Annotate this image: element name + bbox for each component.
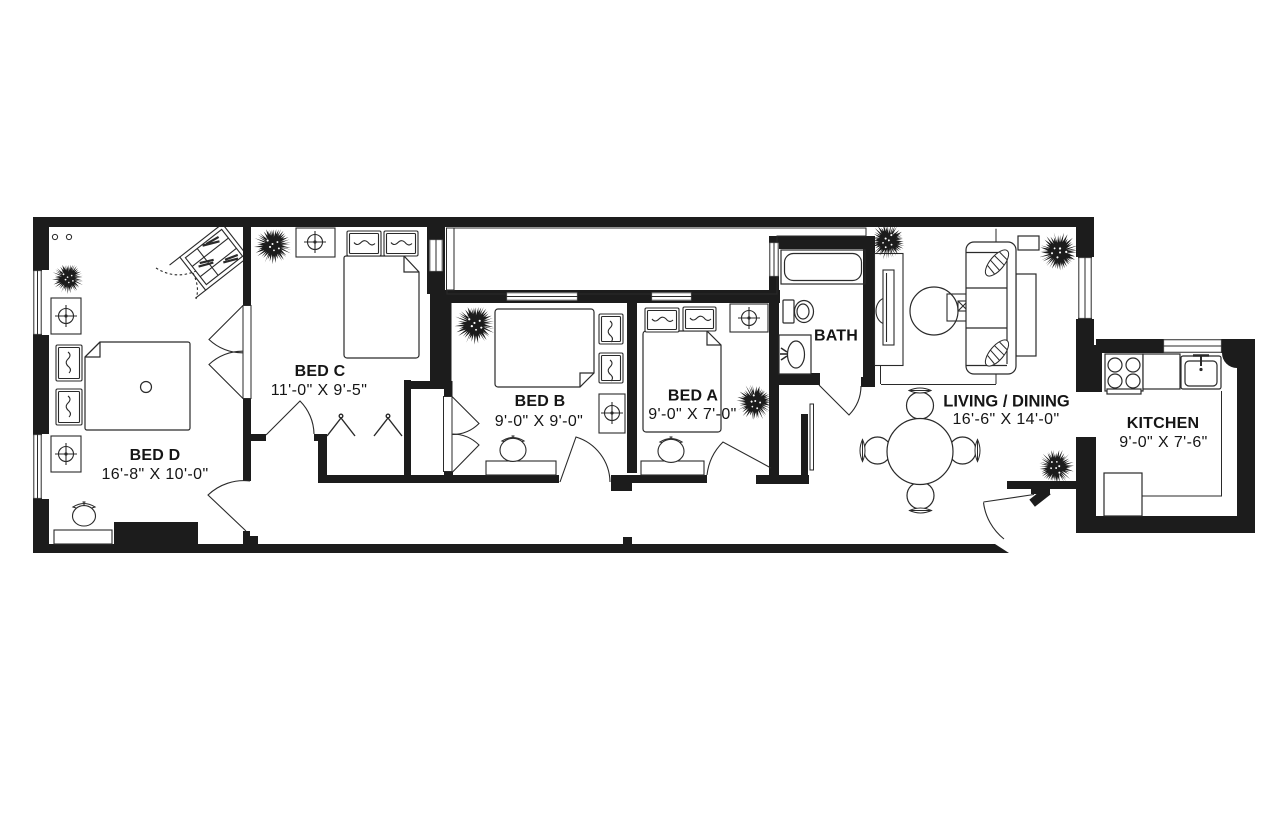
svg-text:9'-0" X 9'-0": 9'-0" X 9'-0" — [495, 413, 583, 430]
svg-text:16'-8" X 10'-0": 16'-8" X 10'-0" — [101, 466, 208, 483]
svg-text:11'-0" X 9'-5": 11'-0" X 9'-5" — [271, 382, 368, 399]
svg-text:9'-0" X 7'-6": 9'-0" X 7'-6" — [1119, 434, 1207, 451]
svg-text:BED A: BED A — [668, 388, 718, 405]
svg-text:LIVING / DINING: LIVING / DINING — [943, 393, 1070, 411]
svg-text:BATH: BATH — [814, 328, 858, 345]
svg-text:BED C: BED C — [295, 363, 346, 380]
svg-text:9'-0" X 7'-0": 9'-0" X 7'-0" — [648, 406, 736, 423]
svg-text:BED D: BED D — [130, 447, 181, 464]
svg-text:16'-6" X 14'-0": 16'-6" X 14'-0" — [952, 411, 1059, 428]
svg-text:KITCHEN: KITCHEN — [1127, 415, 1200, 432]
svg-text:BED B: BED B — [515, 393, 566, 410]
